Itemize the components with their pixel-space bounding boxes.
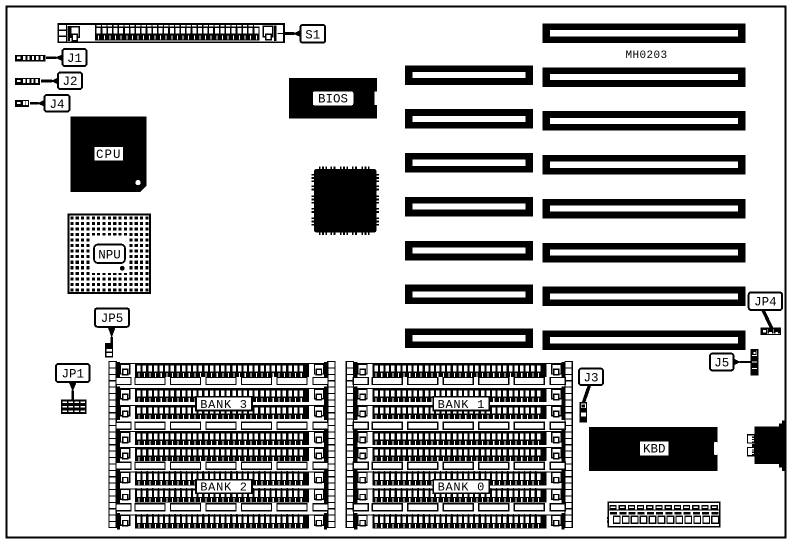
svg-text:BIOS: BIOS	[318, 93, 348, 107]
svg-text:NPU: NPU	[98, 249, 121, 263]
svg-text:JP4: JP4	[754, 296, 777, 310]
svg-text:J2: J2	[62, 75, 77, 89]
svg-text:BANK 2: BANK 2	[200, 481, 247, 495]
svg-text:J1: J1	[67, 52, 82, 66]
svg-text:KBD: KBD	[643, 443, 666, 457]
svg-text:MH0203: MH0203	[625, 50, 667, 62]
svg-text:J5: J5	[714, 357, 729, 371]
svg-text:BANK 0: BANK 0	[438, 481, 485, 495]
svg-text:J4: J4	[49, 98, 64, 112]
svg-text:JP1: JP1	[62, 368, 85, 382]
svg-text:BANK 3: BANK 3	[200, 398, 247, 412]
svg-text:J3: J3	[583, 371, 598, 385]
svg-text:BANK 1: BANK 1	[438, 398, 485, 412]
svg-text:CPU: CPU	[96, 148, 122, 162]
svg-text:S1: S1	[305, 28, 320, 42]
svg-text:JP5: JP5	[101, 312, 124, 326]
